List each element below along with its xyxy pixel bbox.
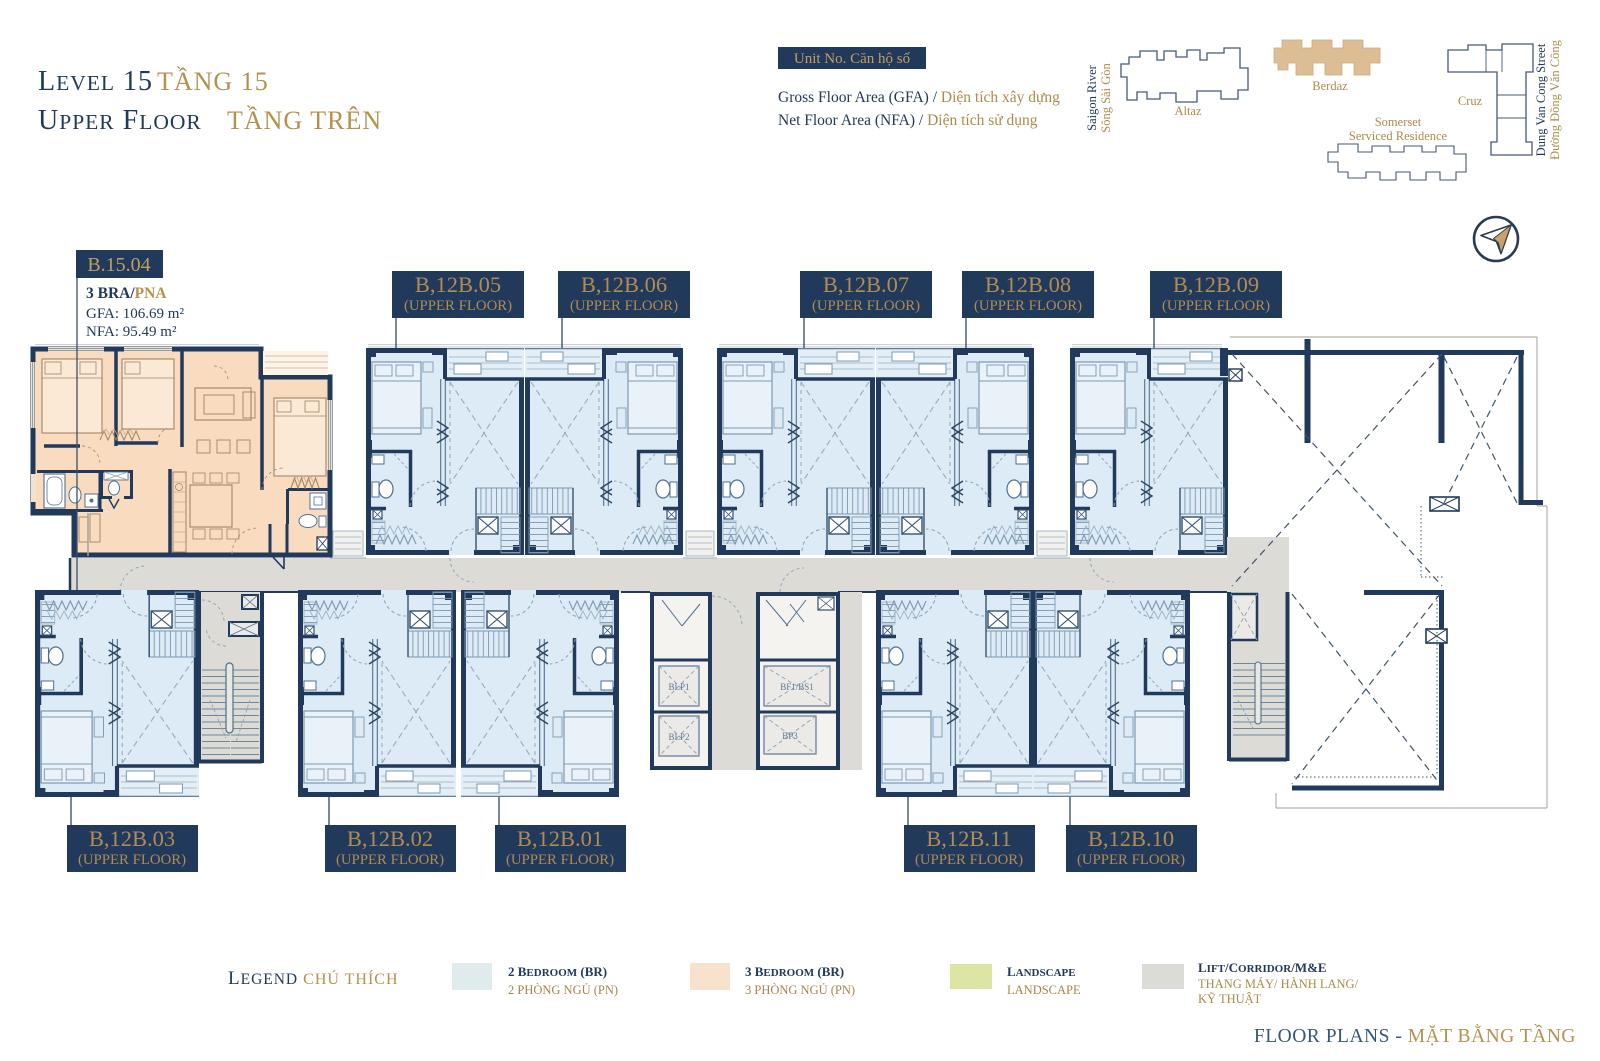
svg-text:B,12B.10: B,12B.10	[1088, 826, 1174, 851]
svg-text:UPPER FLOOR: UPPER FLOOR	[38, 105, 202, 136]
svg-text:B,12B.05: B,12B.05	[415, 272, 501, 297]
svg-text:BLP1: BLP1	[668, 682, 689, 692]
svg-text:Sông Sài Gòn: Sông Sài Gòn	[1099, 63, 1113, 133]
svg-text:B,12B.11: B,12B.11	[926, 826, 1011, 851]
svg-text:(UPPER FLOOR): (UPPER FLOOR)	[1077, 852, 1185, 868]
svg-text:B,12B.06: B,12B.06	[581, 272, 667, 297]
svg-text:(UPPER FLOOR): (UPPER FLOOR)	[974, 298, 1082, 314]
svg-text:B,12B.09: B,12B.09	[1173, 272, 1259, 297]
svg-text:(UPPER FLOOR): (UPPER FLOOR)	[570, 298, 678, 314]
svg-text:(UPPER FLOOR): (UPPER FLOOR)	[78, 852, 186, 868]
svg-text:BF1/BS1: BF1/BS1	[780, 682, 814, 692]
svg-text:LANDSCAPE: LANDSCAPE	[1007, 964, 1076, 979]
svg-text:Dung Van Cong Street: Dung Van Cong Street	[1534, 43, 1548, 156]
svg-text:2 PHÒNG NGỦ (PN): 2 PHÒNG NGỦ (PN)	[508, 983, 618, 997]
svg-text:BLP2: BLP2	[668, 732, 689, 742]
svg-text:(UPPER FLOOR): (UPPER FLOOR)	[812, 298, 920, 314]
svg-text:NFA: 95.49 m²: NFA: 95.49 m²	[86, 324, 177, 340]
svg-text:Saigon River: Saigon River	[1085, 64, 1099, 130]
svg-text:FLOOR PLANS - MẶT BẰNG TẦNG: FLOOR PLANS - MẶT BẰNG TẦNG	[1254, 1025, 1576, 1047]
svg-text:(UPPER FLOOR): (UPPER FLOOR)	[915, 852, 1023, 868]
svg-text:LEGEND CHÚ THÍCH: LEGEND CHÚ THÍCH	[228, 968, 399, 989]
svg-text:TẦNG TRÊN: TẦNG TRÊN	[227, 106, 382, 135]
svg-text:Altaz: Altaz	[1174, 104, 1202, 118]
svg-text:Serviced Residence: Serviced Residence	[1349, 129, 1448, 143]
svg-text:Gross Floor Area (GFA) / Diện: Gross Floor Area (GFA) / Diện tích xây d…	[778, 89, 1060, 106]
svg-text:B.15.04: B.15.04	[87, 254, 150, 276]
svg-text:Berdaz: Berdaz	[1312, 79, 1348, 93]
svg-text:Cruz: Cruz	[1458, 94, 1483, 108]
svg-text:3 PHÒNG NGỦ (PN): 3 PHÒNG NGỦ (PN)	[745, 983, 855, 997]
svg-text:LANDSCAPE: LANDSCAPE	[1007, 983, 1081, 997]
svg-text:GFA: 106.69 m²: GFA: 106.69 m²	[86, 306, 184, 322]
svg-text:LEVEL 15: LEVEL 15	[38, 66, 153, 97]
svg-text:B,12B.01: B,12B.01	[517, 826, 603, 851]
svg-text:(UPPER FLOOR): (UPPER FLOOR)	[336, 852, 444, 868]
svg-text:3 BRA/PNA: 3 BRA/PNA	[86, 285, 167, 302]
svg-text:B,12B.02: B,12B.02	[347, 826, 433, 851]
svg-text:2 BEDROOM (BR): 2 BEDROOM (BR)	[508, 964, 607, 979]
svg-text:Unit No. Căn hộ số: Unit No. Căn hộ số	[794, 51, 911, 67]
svg-text:THANG MÁY/ HÀNH LANG/: THANG MÁY/ HÀNH LANG/	[1198, 977, 1359, 991]
svg-text:LIFT/CORRIDOR/M&E: LIFT/CORRIDOR/M&E	[1198, 960, 1327, 975]
svg-text:TẦNG 15: TẦNG 15	[157, 67, 269, 96]
svg-text:B,12B.08: B,12B.08	[985, 272, 1071, 297]
svg-text:B,12B.07: B,12B.07	[823, 272, 909, 297]
svg-text:BP3: BP3	[782, 731, 798, 741]
svg-text:Đường Đồng Văn Công: Đường Đồng Văn Công	[1548, 39, 1562, 160]
svg-text:(UPPER FLOOR): (UPPER FLOOR)	[506, 852, 614, 868]
svg-text:B,12B.03: B,12B.03	[89, 826, 175, 851]
svg-text:(UPPER FLOOR): (UPPER FLOOR)	[404, 298, 512, 314]
svg-text:Somerset: Somerset	[1375, 115, 1422, 129]
svg-text:3 BEDROOM (BR): 3 BEDROOM (BR)	[745, 964, 844, 979]
svg-text:Net Floor Area (NFA) / Diện tí: Net Floor Area (NFA) / Diện tích sử dụng	[778, 112, 1038, 129]
svg-text:(UPPER FLOOR): (UPPER FLOOR)	[1162, 298, 1270, 314]
svg-text:KỸ THUẬT: KỸ THUẬT	[1198, 992, 1262, 1006]
